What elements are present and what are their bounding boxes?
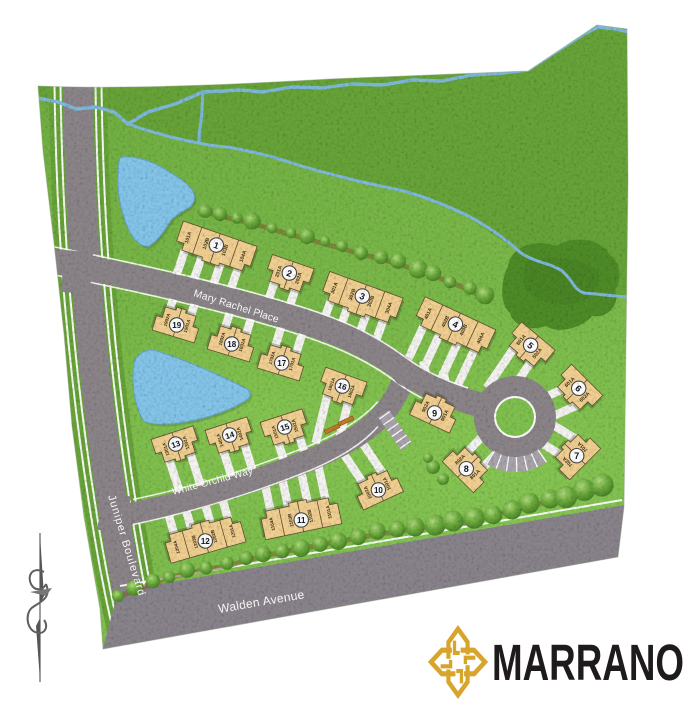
svg-text:MARRANO: MARRANO (492, 634, 684, 691)
